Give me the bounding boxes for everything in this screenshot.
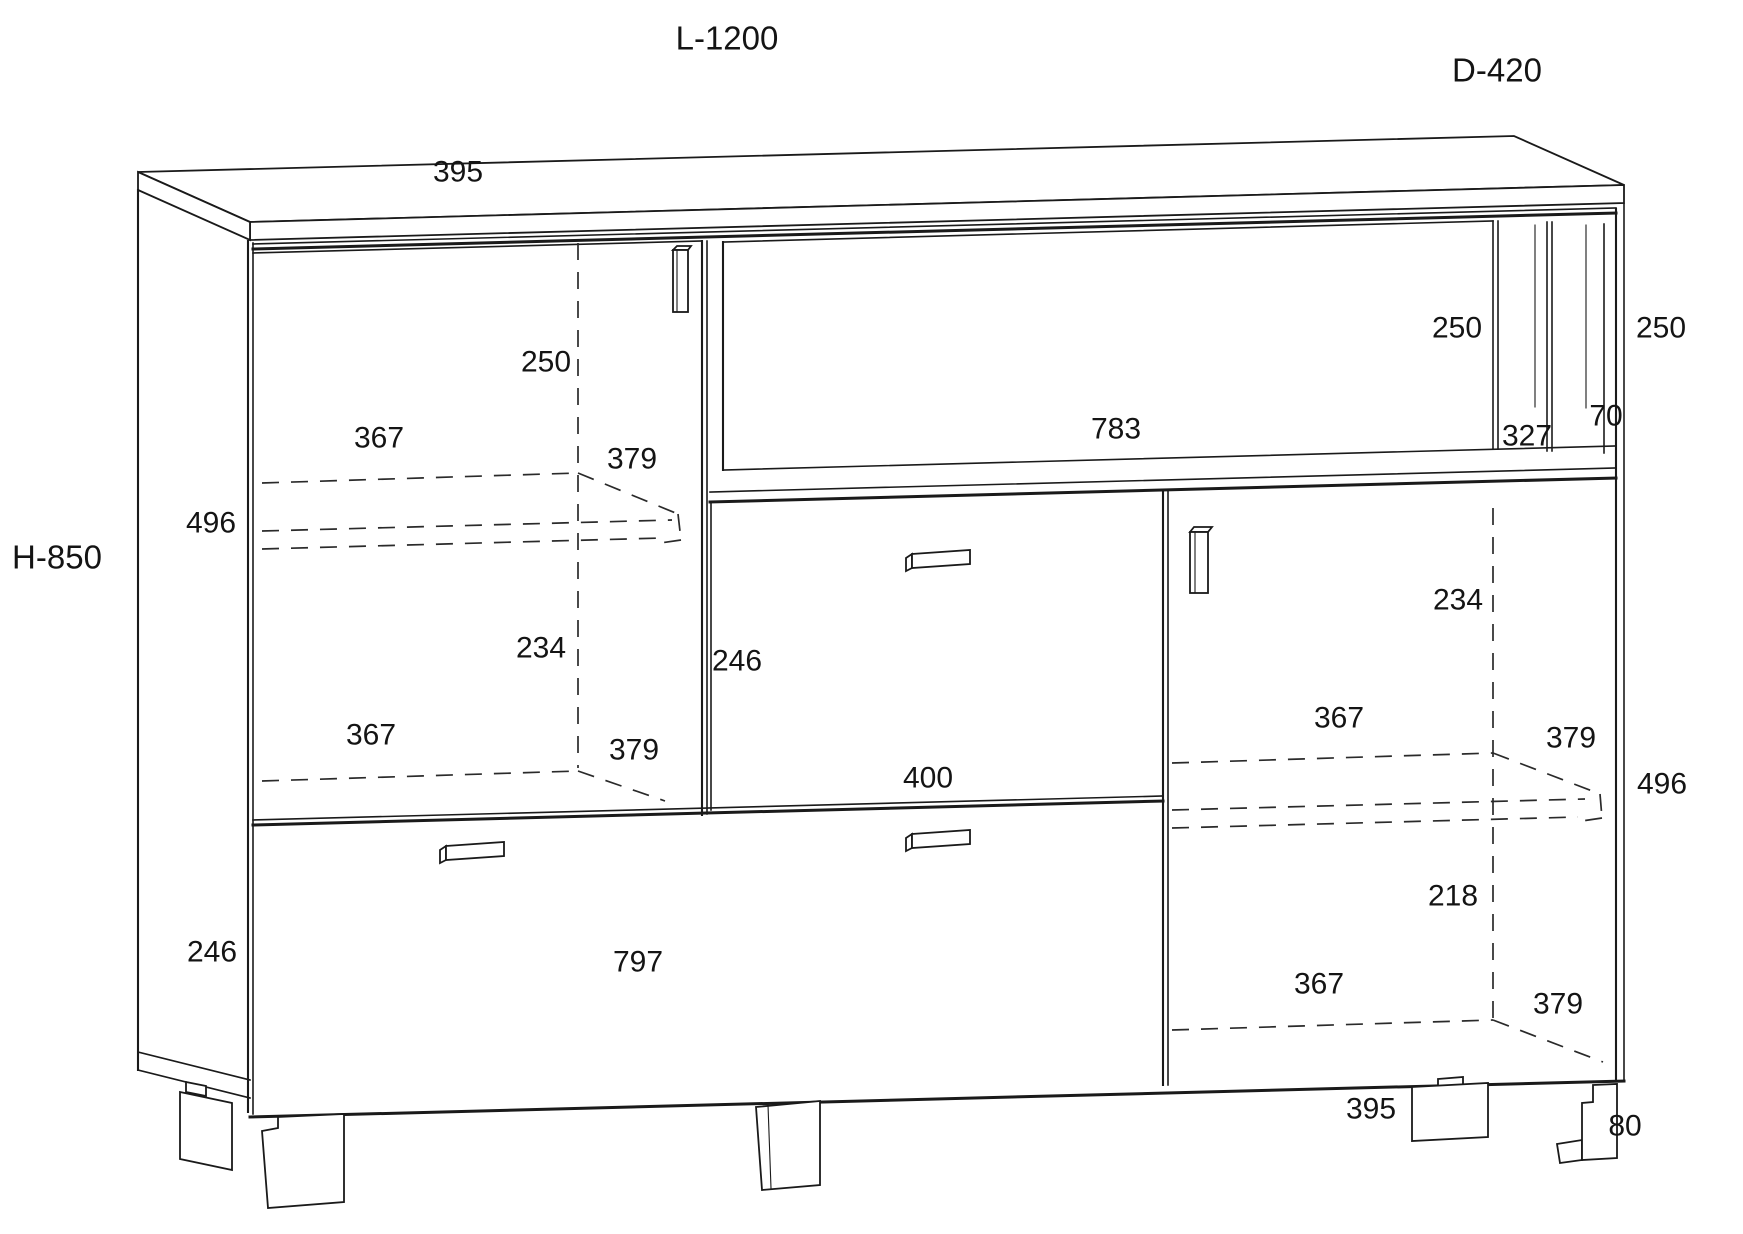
cabinet-technical-drawing: L-1200D-420H-850395250367379496234367379… bbox=[0, 0, 1743, 1234]
right-shelf-width-367: 367 bbox=[1314, 702, 1364, 735]
flap-height-246: 246 bbox=[712, 645, 762, 678]
leg-back-right bbox=[1412, 1077, 1488, 1141]
shelf-dashed-lines-right bbox=[1172, 508, 1603, 1062]
left-shelf-width-367: 367 bbox=[354, 422, 404, 455]
left-drawer-height-246: 246 bbox=[187, 936, 237, 969]
drawer-handle-right bbox=[906, 830, 970, 851]
niche-frame-70: 70 bbox=[1589, 400, 1622, 433]
right-side-height-250: 250 bbox=[1636, 312, 1686, 345]
leg-front-left bbox=[262, 1114, 344, 1208]
left-shelf-depth-379: 379 bbox=[607, 443, 657, 476]
drawer-handle-left bbox=[440, 842, 504, 863]
shelf-dashed-lines-left bbox=[262, 243, 681, 801]
right-upper-height-234: 234 bbox=[1433, 584, 1483, 617]
overall-length: L-1200 bbox=[676, 20, 779, 57]
top-panel bbox=[138, 136, 1624, 240]
left-door-upper-250: 250 bbox=[521, 346, 571, 379]
leg-height-80: 80 bbox=[1608, 1110, 1641, 1143]
open-niche bbox=[710, 221, 1616, 502]
drawing-page: L-1200D-420H-850395250367379496234367379… bbox=[0, 0, 1743, 1234]
right-door-handle bbox=[1190, 527, 1212, 593]
leg-back-left bbox=[180, 1082, 232, 1170]
left-lower-width-367: 367 bbox=[346, 719, 396, 752]
overall-height: H-850 bbox=[12, 539, 102, 576]
right-door-height-496: 496 bbox=[1637, 768, 1687, 801]
left-door-height-496: 496 bbox=[186, 507, 236, 540]
right-shelf-depth-379: 379 bbox=[1546, 722, 1596, 755]
left-lower-depth-379: 379 bbox=[609, 734, 659, 767]
flap-width-400: 400 bbox=[903, 762, 953, 795]
left-door bbox=[253, 241, 707, 815]
flap-door-handle bbox=[906, 550, 970, 571]
right-lower-depth-379: 379 bbox=[1533, 988, 1583, 1021]
left-lower-height-234: 234 bbox=[516, 632, 566, 665]
carcass-frame bbox=[138, 190, 1624, 1117]
left-door-handle bbox=[673, 246, 691, 312]
right-lower-width-367: 367 bbox=[1294, 968, 1344, 1001]
legs bbox=[180, 1077, 1617, 1208]
leg-middle bbox=[756, 1101, 820, 1190]
overall-depth: D-420 bbox=[1452, 52, 1542, 89]
niche-inner-width-327: 327 bbox=[1502, 420, 1552, 453]
drawer-width-797: 797 bbox=[613, 946, 663, 979]
right-door-width-395: 395 bbox=[1346, 1093, 1396, 1126]
right-lower-height-218: 218 bbox=[1428, 880, 1478, 913]
right-door bbox=[1190, 527, 1212, 593]
bottom-drawer bbox=[253, 796, 1163, 863]
niche-height-250: 250 bbox=[1432, 312, 1482, 345]
top-panel-width-395: 395 bbox=[433, 156, 483, 189]
niche-width-783: 783 bbox=[1091, 413, 1141, 446]
